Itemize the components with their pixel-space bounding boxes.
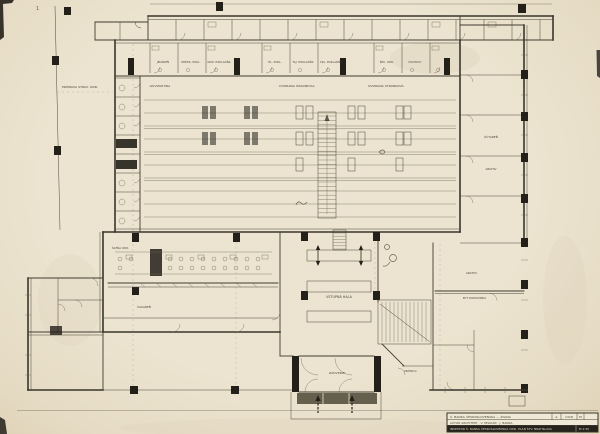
entrance-portico [291,356,381,419]
label-vratnica: VRÁTNICA [404,370,417,373]
label-zadverie: ZÁDVERIE [329,370,345,375]
title-cell-m: M [579,415,582,419]
label-office-4: HL. POKL. [268,60,282,64]
lower-right-wing [378,243,527,393]
label-site: PRÍPRAVA STRAV. ODD. [62,84,98,89]
floor-plan-drawing: PRÍPRAVA STRAV. ODD. JEDÁREŇ PREDS. POKL… [0,0,600,434]
sheet-number: 1 [36,6,39,12]
label-office-6: VKL. POKLADŇA [320,59,342,64]
top-wing [95,2,553,40]
title-row2: AUTOR ARCHITEKT · V. PELIKÁN · J. BANKA [450,420,513,425]
label-likvidatura: LIKVIDATÚRA [150,83,172,88]
label-satna: ŠATŇA ODD. [112,245,129,250]
label-office-5: TAJ. POKLADŇA [292,59,313,64]
title-row1: Š. BANKA ČESKOSLOVENSKÁ — ŽILINA [450,414,512,419]
label-office-2: PREDS. POKL. [181,60,200,64]
secondary-staircase [378,300,431,344]
vestibule [132,230,380,356]
right-wing [460,25,528,393]
title-block: Š. BANKA ČESKOSLOVENSKÁ — ŽILINA A 1318 … [447,413,598,432]
title-row3: INVESTOR Š. BANKA ČESKOSLOVENSKÁ ODD. PL… [450,426,552,431]
label-archiv: ARCHÍV [466,270,477,275]
title-scale: M 1:50 [579,427,589,431]
paper-stains [38,42,587,434]
label-office-1: JEDÁREŇ [156,59,169,64]
direction-arrows [316,245,363,266]
stamp-box [509,396,525,406]
label-office-3: ODD. POKLADŇA [207,59,230,64]
title-cell-number: 1318 [565,415,573,419]
hall-counters [144,100,456,217]
label-byt: BYT DOMOVNÍKA [463,295,486,300]
label-right-room2: ARCHÍV [485,166,496,171]
site-boundary [52,6,71,230]
label-dvorana-strankova: DVORANA STRÁNKOVÁ [368,83,404,88]
label-cakaren: ČAKÁREŇ [137,304,151,309]
label-vstupna-hala: VSTUPNÁ HALA [326,294,353,299]
entrance-steps [291,392,381,419]
label-dvorana-uradnicka: DVORANA ÚRADNÍCKA [279,83,315,88]
label-right-room1: ÚČTÁREŇ [484,134,498,139]
blueprint-scan: PRÍPRAVA STRAV. ODD. JEDÁREŇ PREDS. POKL… [0,0,600,434]
left-cubicles [115,76,140,232]
